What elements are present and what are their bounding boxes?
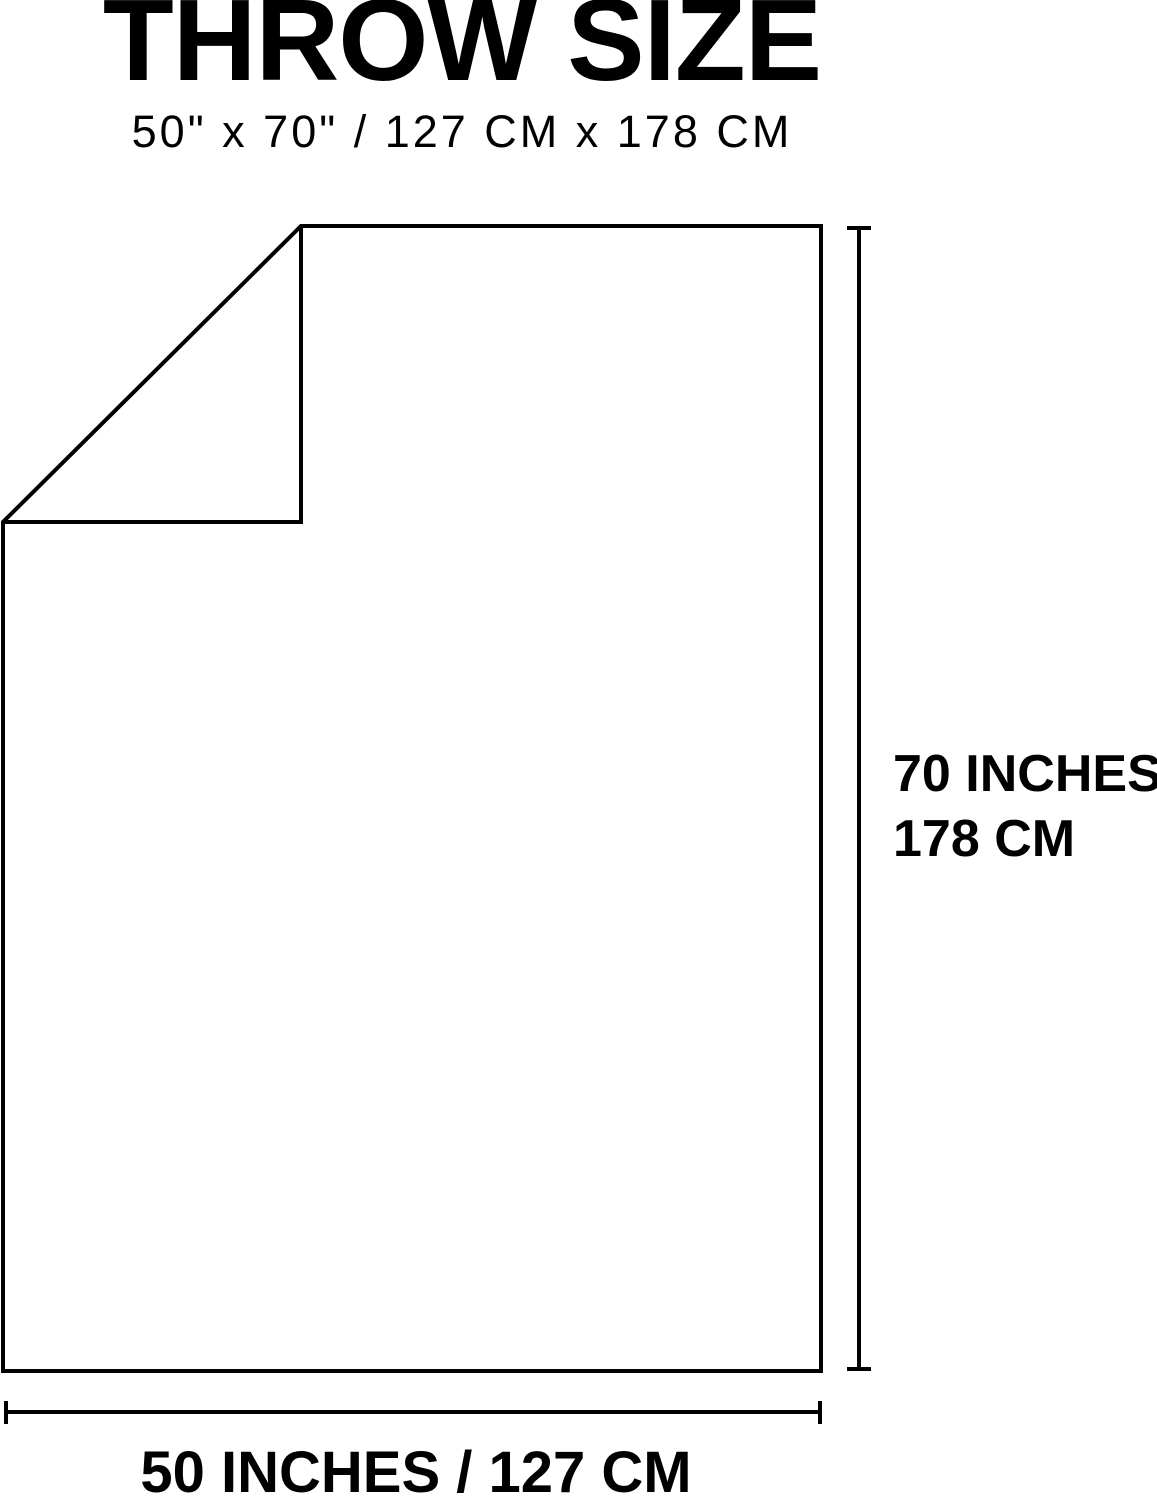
throw-size-diagram-page: { "header": { "title": "THROW SIZE", "su… (0, 0, 1157, 1500)
width-dimension-line (6, 1401, 820, 1424)
height-dimension-line (847, 228, 871, 1369)
width-dimension-label: 50 INCHES / 127 CM (0, 1444, 832, 1502)
blanket-outline (3, 226, 821, 1371)
height-dimension-cm: 178 CM (893, 807, 1157, 872)
height-dimension-inches: 70 INCHES (893, 742, 1157, 807)
height-dimension-label: 70 INCHES 178 CM (893, 742, 1157, 872)
